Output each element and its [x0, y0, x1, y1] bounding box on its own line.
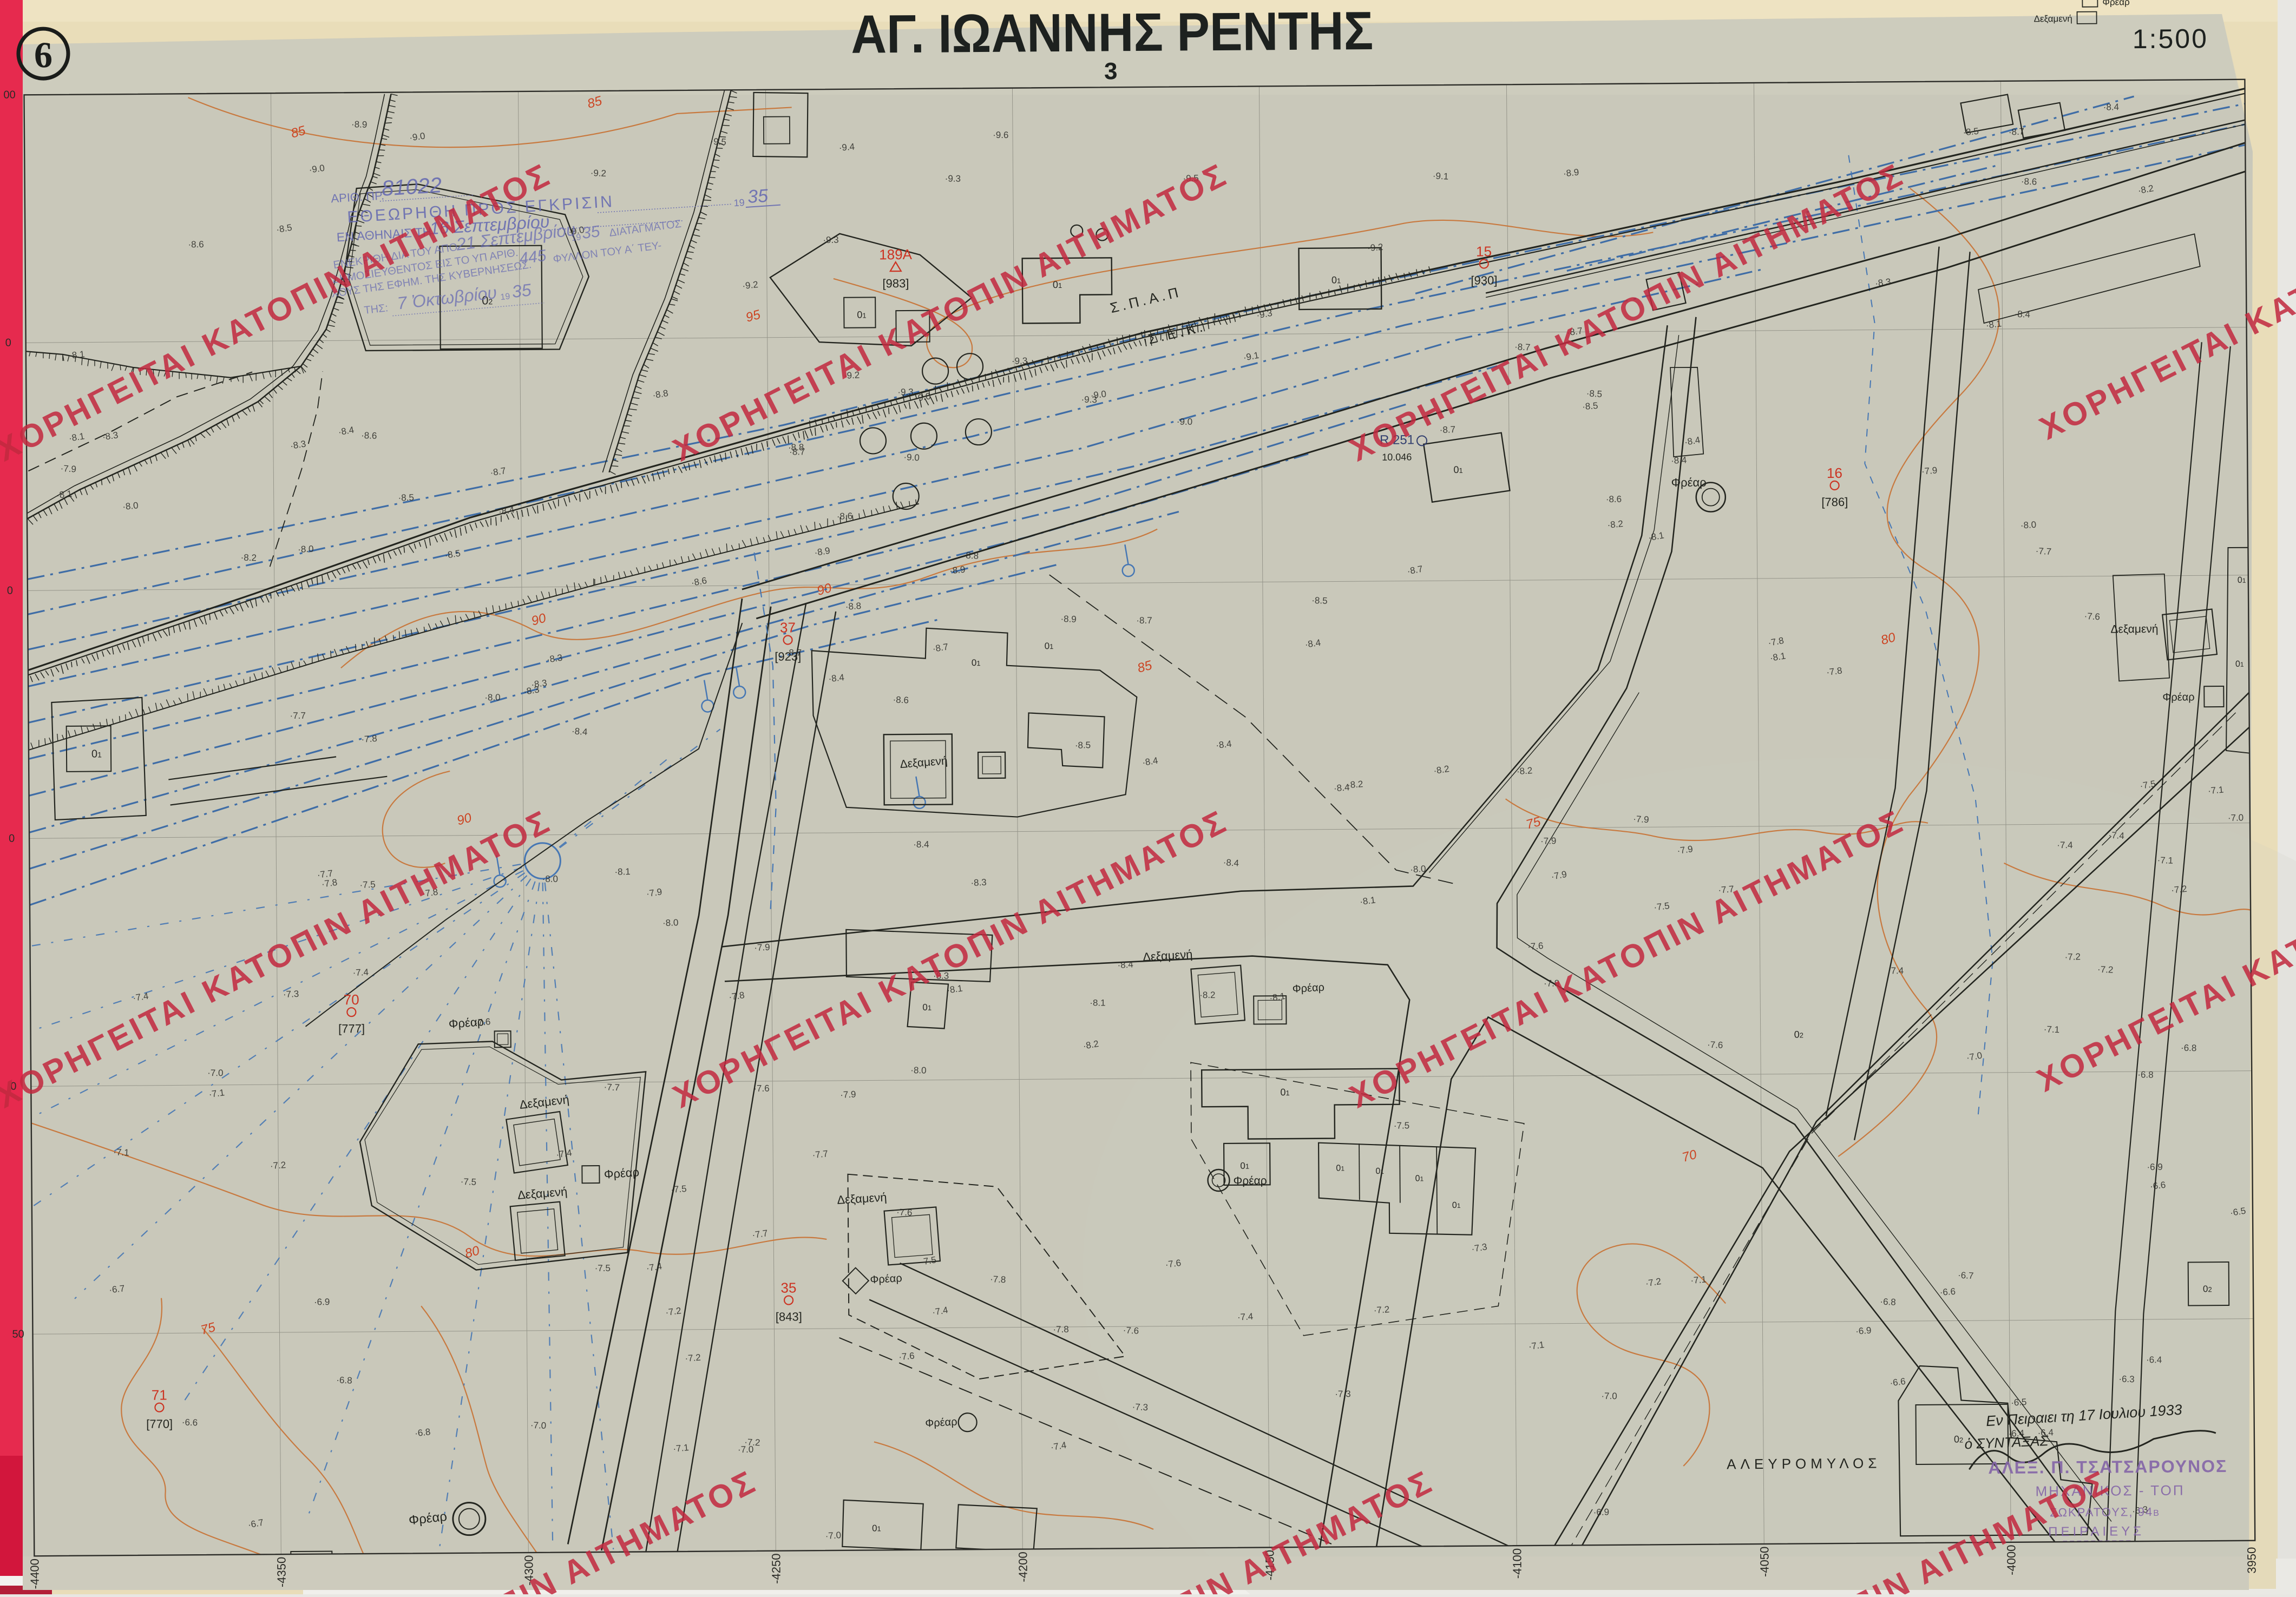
- svg-text:·9.2: ·9.2: [590, 168, 606, 179]
- svg-text:·6.6: ·6.6: [2149, 1180, 2166, 1192]
- svg-text:·9.3: ·9.3: [1012, 356, 1028, 366]
- svg-text:·8.3: ·8.3: [1874, 277, 1891, 289]
- svg-text:·7.6: ·7.6: [1527, 941, 1544, 952]
- svg-text:·7.1: ·7.1: [208, 1087, 225, 1100]
- svg-text:01: 01: [1045, 641, 1054, 651]
- svg-text:16: 16: [1827, 465, 1842, 481]
- svg-text:·8.6: ·8.6: [837, 511, 853, 522]
- svg-text:·6.9: ·6.9: [314, 1297, 330, 1307]
- svg-text:·8.8: ·8.8: [788, 442, 804, 453]
- svg-text:37: 37: [780, 619, 796, 635]
- svg-text:01: 01: [1375, 1167, 1384, 1176]
- svg-text:01: 01: [2238, 576, 2246, 585]
- svg-text:Φρέαρ: Φρέαρ: [1671, 476, 1706, 489]
- svg-text:·8.5: ·8.5: [398, 492, 414, 503]
- svg-text:·6.7: ·6.7: [108, 1283, 125, 1295]
- svg-text:·7.0: ·7.0: [207, 1068, 223, 1078]
- svg-text:·7.8: ·7.8: [321, 877, 338, 890]
- svg-text:·8.7: ·8.7: [2008, 126, 2024, 137]
- svg-text:·6.6: ·6.6: [1889, 1376, 1906, 1388]
- svg-text:·8.9: ·8.9: [351, 119, 368, 130]
- svg-text:·8.6: ·8.6: [893, 694, 909, 705]
- svg-text:·8.2: ·8.2: [1607, 518, 1624, 530]
- svg-text:·7.3: ·7.3: [283, 989, 299, 1000]
- svg-text:70: 70: [344, 991, 359, 1008]
- svg-text:·6.8: ·6.8: [2181, 1043, 2197, 1054]
- svg-text:·8.1: ·8.1: [614, 866, 631, 877]
- svg-text:19: 19: [733, 197, 745, 208]
- svg-text:·9.0: ·9.0: [1090, 389, 1107, 400]
- svg-text:·8.0: ·8.0: [122, 500, 139, 512]
- svg-text:·6.6: ·6.6: [1939, 1286, 1956, 1298]
- svg-text:·7.6: ·7.6: [2084, 611, 2100, 622]
- svg-text:·8.1: ·8.1: [946, 983, 963, 996]
- svg-text:50: 50: [12, 1328, 24, 1340]
- svg-text:·8.4: ·8.4: [2014, 309, 2030, 320]
- svg-text:·8.2: ·8.2: [240, 553, 257, 563]
- svg-text:·8.5: ·8.5: [1582, 400, 1598, 412]
- svg-text:·8.4: ·8.4: [828, 672, 845, 684]
- svg-text:·6.8: ·6.8: [1880, 1296, 1896, 1307]
- svg-text:·9.0: ·9.0: [903, 452, 920, 463]
- svg-text:·9.0: ·9.0: [409, 131, 426, 143]
- svg-text:[770]: [770]: [146, 1417, 173, 1431]
- svg-text:ΑΓ. ΙΩΑΝΝΗΣ ΡΕΝΤΗΣ: ΑΓ. ΙΩΑΝΝΗΣ ΡΕΝΤΗΣ: [851, 1, 1374, 65]
- svg-text:·7.6: ·7.6: [896, 1207, 913, 1218]
- svg-text:·7.0: ·7.0: [530, 1420, 547, 1431]
- svg-text:·7.1: ·7.1: [113, 1147, 129, 1158]
- svg-text:3: 3: [1104, 58, 1118, 84]
- svg-text:·7.2: ·7.2: [1373, 1304, 1390, 1316]
- svg-text:·7.1: ·7.1: [2207, 784, 2224, 796]
- svg-text:·8.6: ·8.6: [361, 430, 377, 441]
- svg-text:·8.1: ·8.1: [1359, 895, 1376, 907]
- svg-text:·7.9: ·7.9: [840, 1089, 856, 1100]
- svg-text:Δεξαμενή: Δεξαμενή: [2110, 623, 2158, 636]
- svg-text:·7.6: ·7.6: [753, 1083, 770, 1094]
- svg-text:00: 00: [3, 89, 15, 101]
- svg-text:·8.8: ·8.8: [962, 550, 979, 561]
- svg-text:·6.9: ·6.9: [1593, 1507, 1609, 1517]
- svg-text:19: 19: [571, 233, 582, 243]
- svg-text:·8.8: ·8.8: [845, 601, 861, 612]
- svg-text:01: 01: [2235, 660, 2244, 669]
- svg-text:·6.4: ·6.4: [2146, 1355, 2162, 1365]
- svg-text:01: 01: [872, 1523, 881, 1533]
- svg-text:15: 15: [1476, 243, 1492, 259]
- svg-text:·7.9: ·7.9: [1633, 814, 1649, 825]
- svg-text:01: 01: [922, 1002, 931, 1013]
- svg-text:·7.7: ·7.7: [603, 1082, 620, 1093]
- svg-text:·8.0: ·8.0: [910, 1065, 927, 1076]
- svg-text:71: 71: [152, 1387, 167, 1403]
- svg-text:35: 35: [747, 186, 769, 207]
- svg-text:·8.4: ·8.4: [1333, 782, 1350, 793]
- svg-text:·7.5: ·7.5: [460, 1177, 476, 1187]
- svg-text:·9.2: ·9.2: [742, 279, 758, 291]
- svg-text:·7.4: ·7.4: [2057, 840, 2072, 850]
- svg-text:·8.9: ·8.9: [949, 564, 966, 576]
- svg-text:·8.0: ·8.0: [542, 874, 558, 884]
- svg-text:ΑΛΕΥΡΟΜΥΛΟΣ: ΑΛΕΥΡΟΜΥΛΟΣ: [1727, 1455, 1881, 1472]
- svg-text:·6.9: ·6.9: [1855, 1325, 1872, 1337]
- svg-text:·8.2: ·8.2: [1516, 765, 1533, 777]
- svg-text:·9.5: ·9.5: [710, 136, 726, 148]
- svg-text:·7.1: ·7.1: [2157, 855, 2173, 866]
- svg-text:6: 6: [34, 34, 53, 75]
- svg-text:·7.2: ·7.2: [2064, 951, 2081, 962]
- svg-text:·7.6: ·7.6: [1165, 1258, 1182, 1270]
- svg-text:·9.1: ·9.1: [1432, 170, 1448, 182]
- svg-text:02: 02: [2203, 1284, 2212, 1294]
- svg-text:·8.0: ·8.0: [1410, 864, 1426, 875]
- svg-text:·7.8: ·7.8: [990, 1274, 1006, 1285]
- svg-text:-4350: -4350: [274, 1557, 288, 1587]
- svg-text:01: 01: [91, 748, 102, 760]
- svg-text:·7.8: ·7.8: [361, 733, 378, 745]
- svg-text:0: 0: [9, 833, 15, 845]
- svg-text:·8.1: ·8.1: [1985, 318, 2003, 331]
- svg-text:·9.3: ·9.3: [823, 235, 839, 245]
- svg-text:·8.4: ·8.4: [913, 839, 929, 850]
- svg-text:·8.5: ·8.5: [1311, 595, 1328, 606]
- svg-text:Φρέαρ: Φρέαρ: [2162, 691, 2194, 703]
- svg-text:·6.8: ·6.8: [336, 1375, 352, 1385]
- svg-text:·7.7: ·7.7: [812, 1148, 829, 1160]
- svg-text:·7.8: ·7.8: [1826, 665, 1843, 678]
- svg-text:·7.7: ·7.7: [751, 1228, 769, 1240]
- svg-text:·8.5: ·8.5: [1075, 740, 1091, 751]
- svg-text:·8.5: ·8.5: [1963, 126, 1979, 138]
- svg-text:Φρέαρ: Φρέαρ: [1292, 982, 1324, 995]
- svg-text:·7.5: ·7.5: [671, 1184, 687, 1195]
- svg-text:ΠΕΙΡΑΙΕΥΣ: ΠΕΙΡΑΙΕΥΣ: [2048, 1524, 2144, 1539]
- svg-text:·8.4: ·8.4: [572, 726, 588, 737]
- svg-text:·8.4: ·8.4: [1670, 455, 1687, 466]
- svg-text:81022: 81022: [381, 173, 443, 201]
- svg-text:·7.2: ·7.2: [685, 1352, 701, 1364]
- svg-text:·7.9: ·7.9: [1540, 836, 1557, 846]
- svg-text:·7.9: ·7.9: [754, 942, 770, 953]
- svg-text:[983]: [983]: [882, 277, 909, 290]
- svg-text:Φρέαρ: Φρέαρ: [2102, 0, 2129, 8]
- svg-text:0: 0: [5, 337, 11, 349]
- svg-text:·6.9: ·6.9: [2147, 1162, 2162, 1172]
- svg-text:·8.6: ·8.6: [1606, 494, 1622, 504]
- svg-text:·9.2: ·9.2: [1367, 242, 1383, 253]
- svg-text:·7.3: ·7.3: [1132, 1402, 1148, 1412]
- svg-text:·8.9: ·8.9: [1060, 614, 1077, 625]
- svg-text:35: 35: [511, 280, 533, 301]
- svg-text:01: 01: [1240, 1161, 1249, 1171]
- svg-text:·8.7: ·8.7: [786, 648, 802, 658]
- svg-text:·7.5: ·7.5: [1653, 901, 1670, 912]
- svg-text:·8.0: ·8.0: [662, 917, 679, 928]
- svg-text:[777]: [777]: [338, 1022, 365, 1035]
- svg-text:·7.6: ·7.6: [1123, 1325, 1139, 1336]
- svg-text:·7.2: ·7.2: [270, 1160, 286, 1171]
- svg-text:-4050: -4050: [1757, 1547, 1771, 1577]
- svg-text:·6.3: ·6.3: [2118, 1373, 2135, 1384]
- svg-text:Φρέαρ: Φρέαρ: [925, 1416, 957, 1429]
- svg-text:·9.0: ·9.0: [308, 163, 325, 175]
- svg-text:[843]: [843]: [776, 1310, 802, 1323]
- svg-text:·7.2: ·7.2: [744, 1437, 760, 1448]
- svg-text:189Α: 189Α: [879, 246, 913, 262]
- svg-text:·7.1: ·7.1: [1528, 1339, 1545, 1352]
- svg-text:·7.3: ·7.3: [1335, 1389, 1351, 1399]
- svg-text:1:500: 1:500: [2133, 23, 2209, 54]
- svg-text:·7.0: ·7.0: [1601, 1391, 1617, 1401]
- svg-text:01: 01: [1452, 1201, 1461, 1210]
- svg-text:·7.7: ·7.7: [290, 711, 306, 721]
- svg-text:0: 0: [7, 585, 13, 597]
- svg-text:·7.5: ·7.5: [595, 1263, 611, 1273]
- svg-text:·7.6: ·7.6: [1707, 1040, 1723, 1050]
- svg-text:·8.6: ·8.6: [2021, 176, 2037, 187]
- svg-text:·7.1: ·7.1: [2044, 1024, 2060, 1035]
- svg-text:ΑΛΕΞ. Π. ΤΣΑΤΣΑΡΟΥΝΟΣ: ΑΛΕΞ. Π. ΤΣΑΤΣΑΡΟΥΝΟΣ: [1988, 1456, 2227, 1477]
- svg-text:01: 01: [1336, 1164, 1344, 1173]
- svg-text:·8.4: ·8.4: [1223, 857, 1239, 869]
- svg-text:·8.0: ·8.0: [298, 544, 314, 555]
- svg-text:·8.4: ·8.4: [2103, 102, 2120, 112]
- svg-text:·7.6: ·7.6: [474, 1016, 491, 1028]
- svg-text:·8.1: ·8.1: [68, 349, 85, 361]
- svg-text:Φρέαρ: Φρέαρ: [870, 1272, 902, 1286]
- svg-text:·8.1: ·8.1: [1090, 998, 1105, 1008]
- svg-text:·7.2: ·7.2: [2170, 884, 2187, 896]
- svg-text:·7.0: ·7.0: [825, 1530, 842, 1541]
- svg-text:·8.9: ·8.9: [1563, 167, 1579, 179]
- svg-text:Δεξαμενή: Δεξαμενή: [2034, 14, 2072, 24]
- svg-text:35: 35: [581, 222, 601, 242]
- svg-text:35: 35: [780, 1279, 796, 1296]
- svg-text:·6.8: ·6.8: [414, 1427, 431, 1438]
- svg-text:·7.9: ·7.9: [1921, 465, 1938, 476]
- svg-text:·7.2: ·7.2: [2097, 964, 2114, 975]
- svg-text:01: 01: [1415, 1174, 1423, 1183]
- svg-text:·7.7: ·7.7: [2035, 546, 2051, 556]
- svg-text:19: 19: [500, 292, 511, 302]
- svg-text:·7.4: ·7.4: [1237, 1311, 1253, 1323]
- svg-text:·6.8: ·6.8: [2137, 1069, 2154, 1080]
- svg-text:·8.1: ·8.1: [56, 489, 73, 501]
- svg-text:·7.4: ·7.4: [2108, 830, 2124, 842]
- svg-text:·9.6: ·9.6: [993, 130, 1008, 140]
- svg-text:·8.7: ·8.7: [1136, 615, 1152, 626]
- svg-text:·9.3: ·9.3: [897, 387, 913, 397]
- svg-text:[930]: [930]: [1471, 273, 1497, 287]
- svg-text:·9.0: ·9.0: [1177, 417, 1193, 427]
- svg-text:·8.4: ·8.4: [1215, 739, 1232, 751]
- svg-text:·8.3: ·8.3: [970, 877, 987, 888]
- svg-text:-4400: -4400: [28, 1559, 41, 1589]
- svg-text:·7.5: ·7.5: [1394, 1120, 1410, 1131]
- svg-text:[786]: [786]: [1821, 495, 1848, 509]
- svg-text:·7.0: ·7.0: [2228, 812, 2244, 823]
- svg-text:·8.0: ·8.0: [484, 692, 501, 702]
- svg-text:·7.1: ·7.1: [672, 1442, 689, 1454]
- svg-text:3950: 3950: [2245, 1547, 2258, 1574]
- svg-text:-4200: -4200: [1016, 1552, 1029, 1582]
- svg-text:·7.4: ·7.4: [1888, 965, 1904, 976]
- svg-text:·6.5: ·6.5: [2011, 1397, 2027, 1408]
- svg-text:·9.4: ·9.4: [838, 141, 855, 153]
- svg-text:·6.6: ·6.6: [182, 1417, 198, 1428]
- svg-text:·8.0: ·8.0: [2020, 520, 2036, 531]
- svg-text:·7.4: ·7.4: [352, 967, 369, 978]
- svg-text:·8.6: ·8.6: [188, 239, 204, 249]
- svg-text:·8.4: ·8.4: [1117, 959, 1133, 970]
- svg-text:01: 01: [972, 658, 981, 668]
- svg-text:·8.5: ·8.5: [1586, 388, 1602, 399]
- svg-text:-4100: -4100: [1510, 1548, 1524, 1579]
- svg-text:·8.2: ·8.2: [1199, 990, 1215, 1000]
- svg-text:Φρέαρ: Φρέαρ: [1233, 1174, 1267, 1187]
- svg-text:Φρέαρ: Φρέαρ: [603, 1165, 640, 1181]
- svg-text:·7.1: ·7.1: [1690, 1274, 1707, 1286]
- svg-text:·6.7: ·6.7: [1958, 1270, 1974, 1281]
- svg-text:·7.9: ·7.9: [60, 463, 76, 475]
- svg-text:·7.6: ·7.6: [898, 1351, 915, 1362]
- svg-text:·7.8: ·7.8: [1053, 1324, 1069, 1335]
- svg-text:·8.3: ·8.3: [530, 678, 547, 690]
- svg-text:-4250: -4250: [769, 1553, 783, 1583]
- svg-text:·9.3: ·9.3: [945, 173, 961, 183]
